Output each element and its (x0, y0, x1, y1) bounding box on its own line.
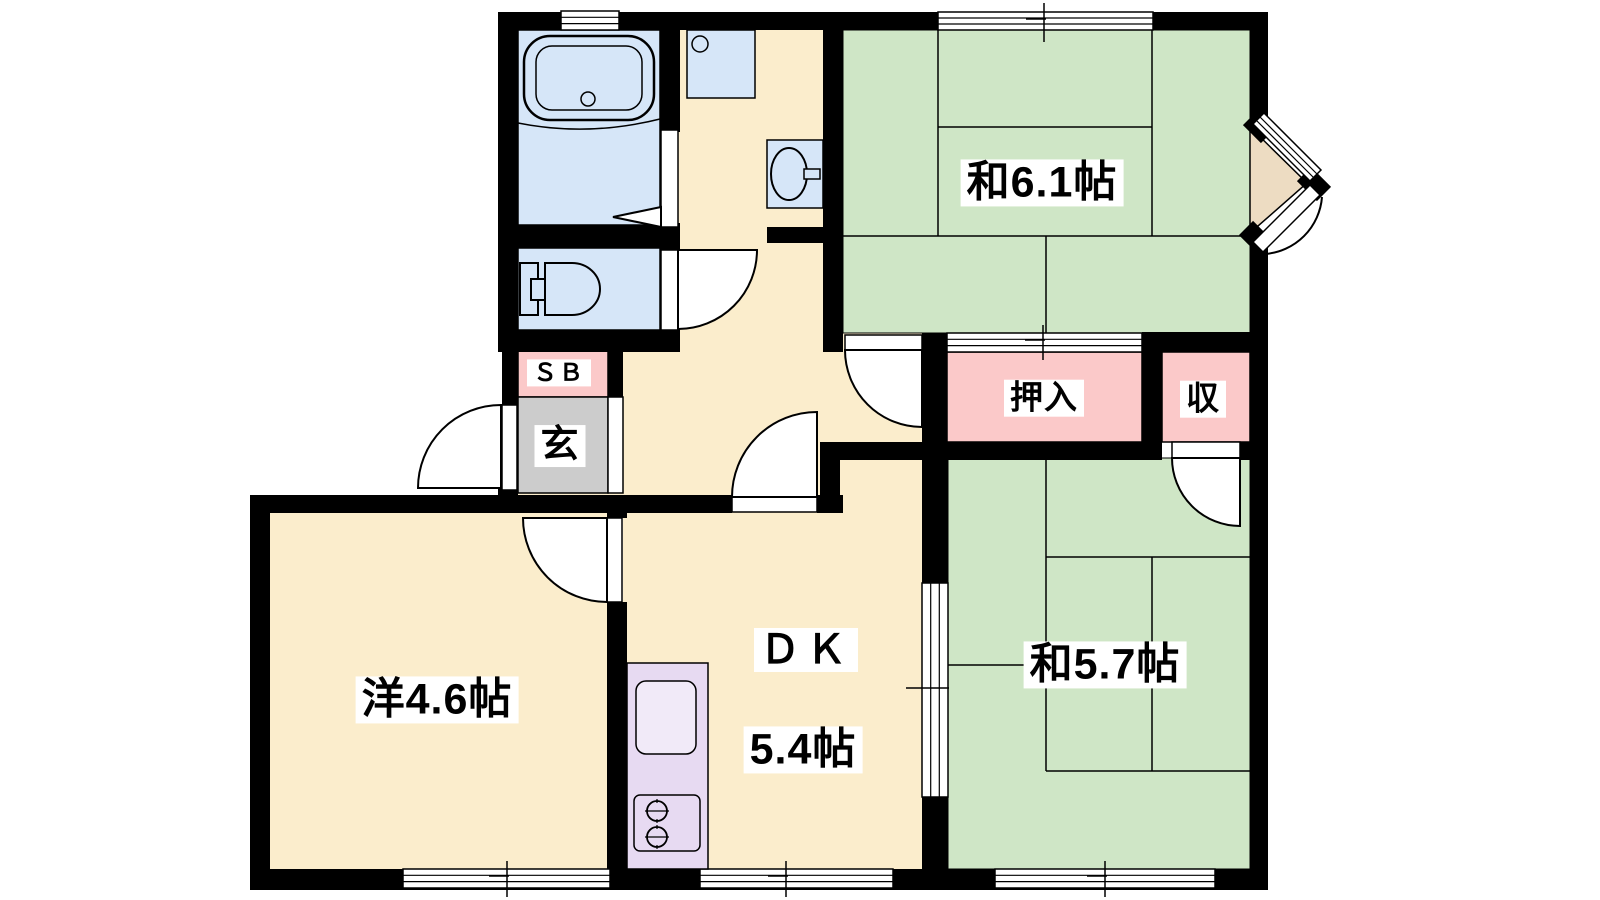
window-bathroom (561, 11, 619, 30)
wall-left-upper (498, 12, 518, 350)
wall-sb-right (608, 350, 623, 397)
washbasin (767, 140, 823, 208)
label-japanese-room-6-1: 和6.1帖 (961, 159, 1124, 206)
wall-basin-nook (767, 227, 823, 243)
label-shoe-box: ＳＢ (527, 359, 591, 386)
kitchen-counter (627, 663, 708, 869)
genkan-step-edge (608, 397, 623, 493)
label-oshiire-closet: 押入 (1004, 380, 1084, 417)
label-storage: 収 (1180, 381, 1226, 418)
gas-stove (634, 795, 700, 851)
wall-bath-bottom (498, 225, 680, 248)
wall-below-oshiire (820, 442, 1162, 460)
wall-storage-top (1142, 332, 1268, 352)
wall-western-dk-top (607, 495, 627, 518)
wall-right-main (1250, 233, 1268, 890)
floor-plan: 和6.1帖 押入 収 和5.7帖 ＤＫ 5.4帖 洋4.6帖 ＳＢ 玄 (0, 0, 1600, 900)
wall-right-upper (1250, 12, 1268, 127)
label-japanese-room-5-7: 和5.7帖 (1024, 641, 1187, 688)
entrance-door (418, 405, 517, 490)
kitchen-sink (636, 681, 696, 754)
label-genkan: 玄 (534, 425, 585, 467)
label-western-room: 洋4.6帖 (356, 676, 519, 723)
wall-toilet-bottom (498, 330, 680, 352)
wall-left-sb (502, 350, 518, 407)
bathtub (518, 36, 660, 129)
wall-bath-right-upper (660, 30, 680, 132)
label-dk-size: 5.4帖 (744, 726, 863, 773)
wall-western-dk (607, 602, 627, 869)
wall-dk-corner-h (817, 495, 843, 513)
wall-w61-door-post (922, 333, 947, 442)
wall-western-top (250, 495, 732, 513)
label-dining-kitchen: ＤＫ (754, 628, 858, 672)
wall-left-lower (250, 495, 270, 890)
wall-hall-east (823, 30, 843, 352)
wall-dk-w57-lower (922, 797, 948, 869)
wall-oshiire-storage-divider (1142, 352, 1162, 442)
washing-machine-pan (687, 30, 755, 98)
wall-dk-w57-upper (922, 458, 948, 583)
